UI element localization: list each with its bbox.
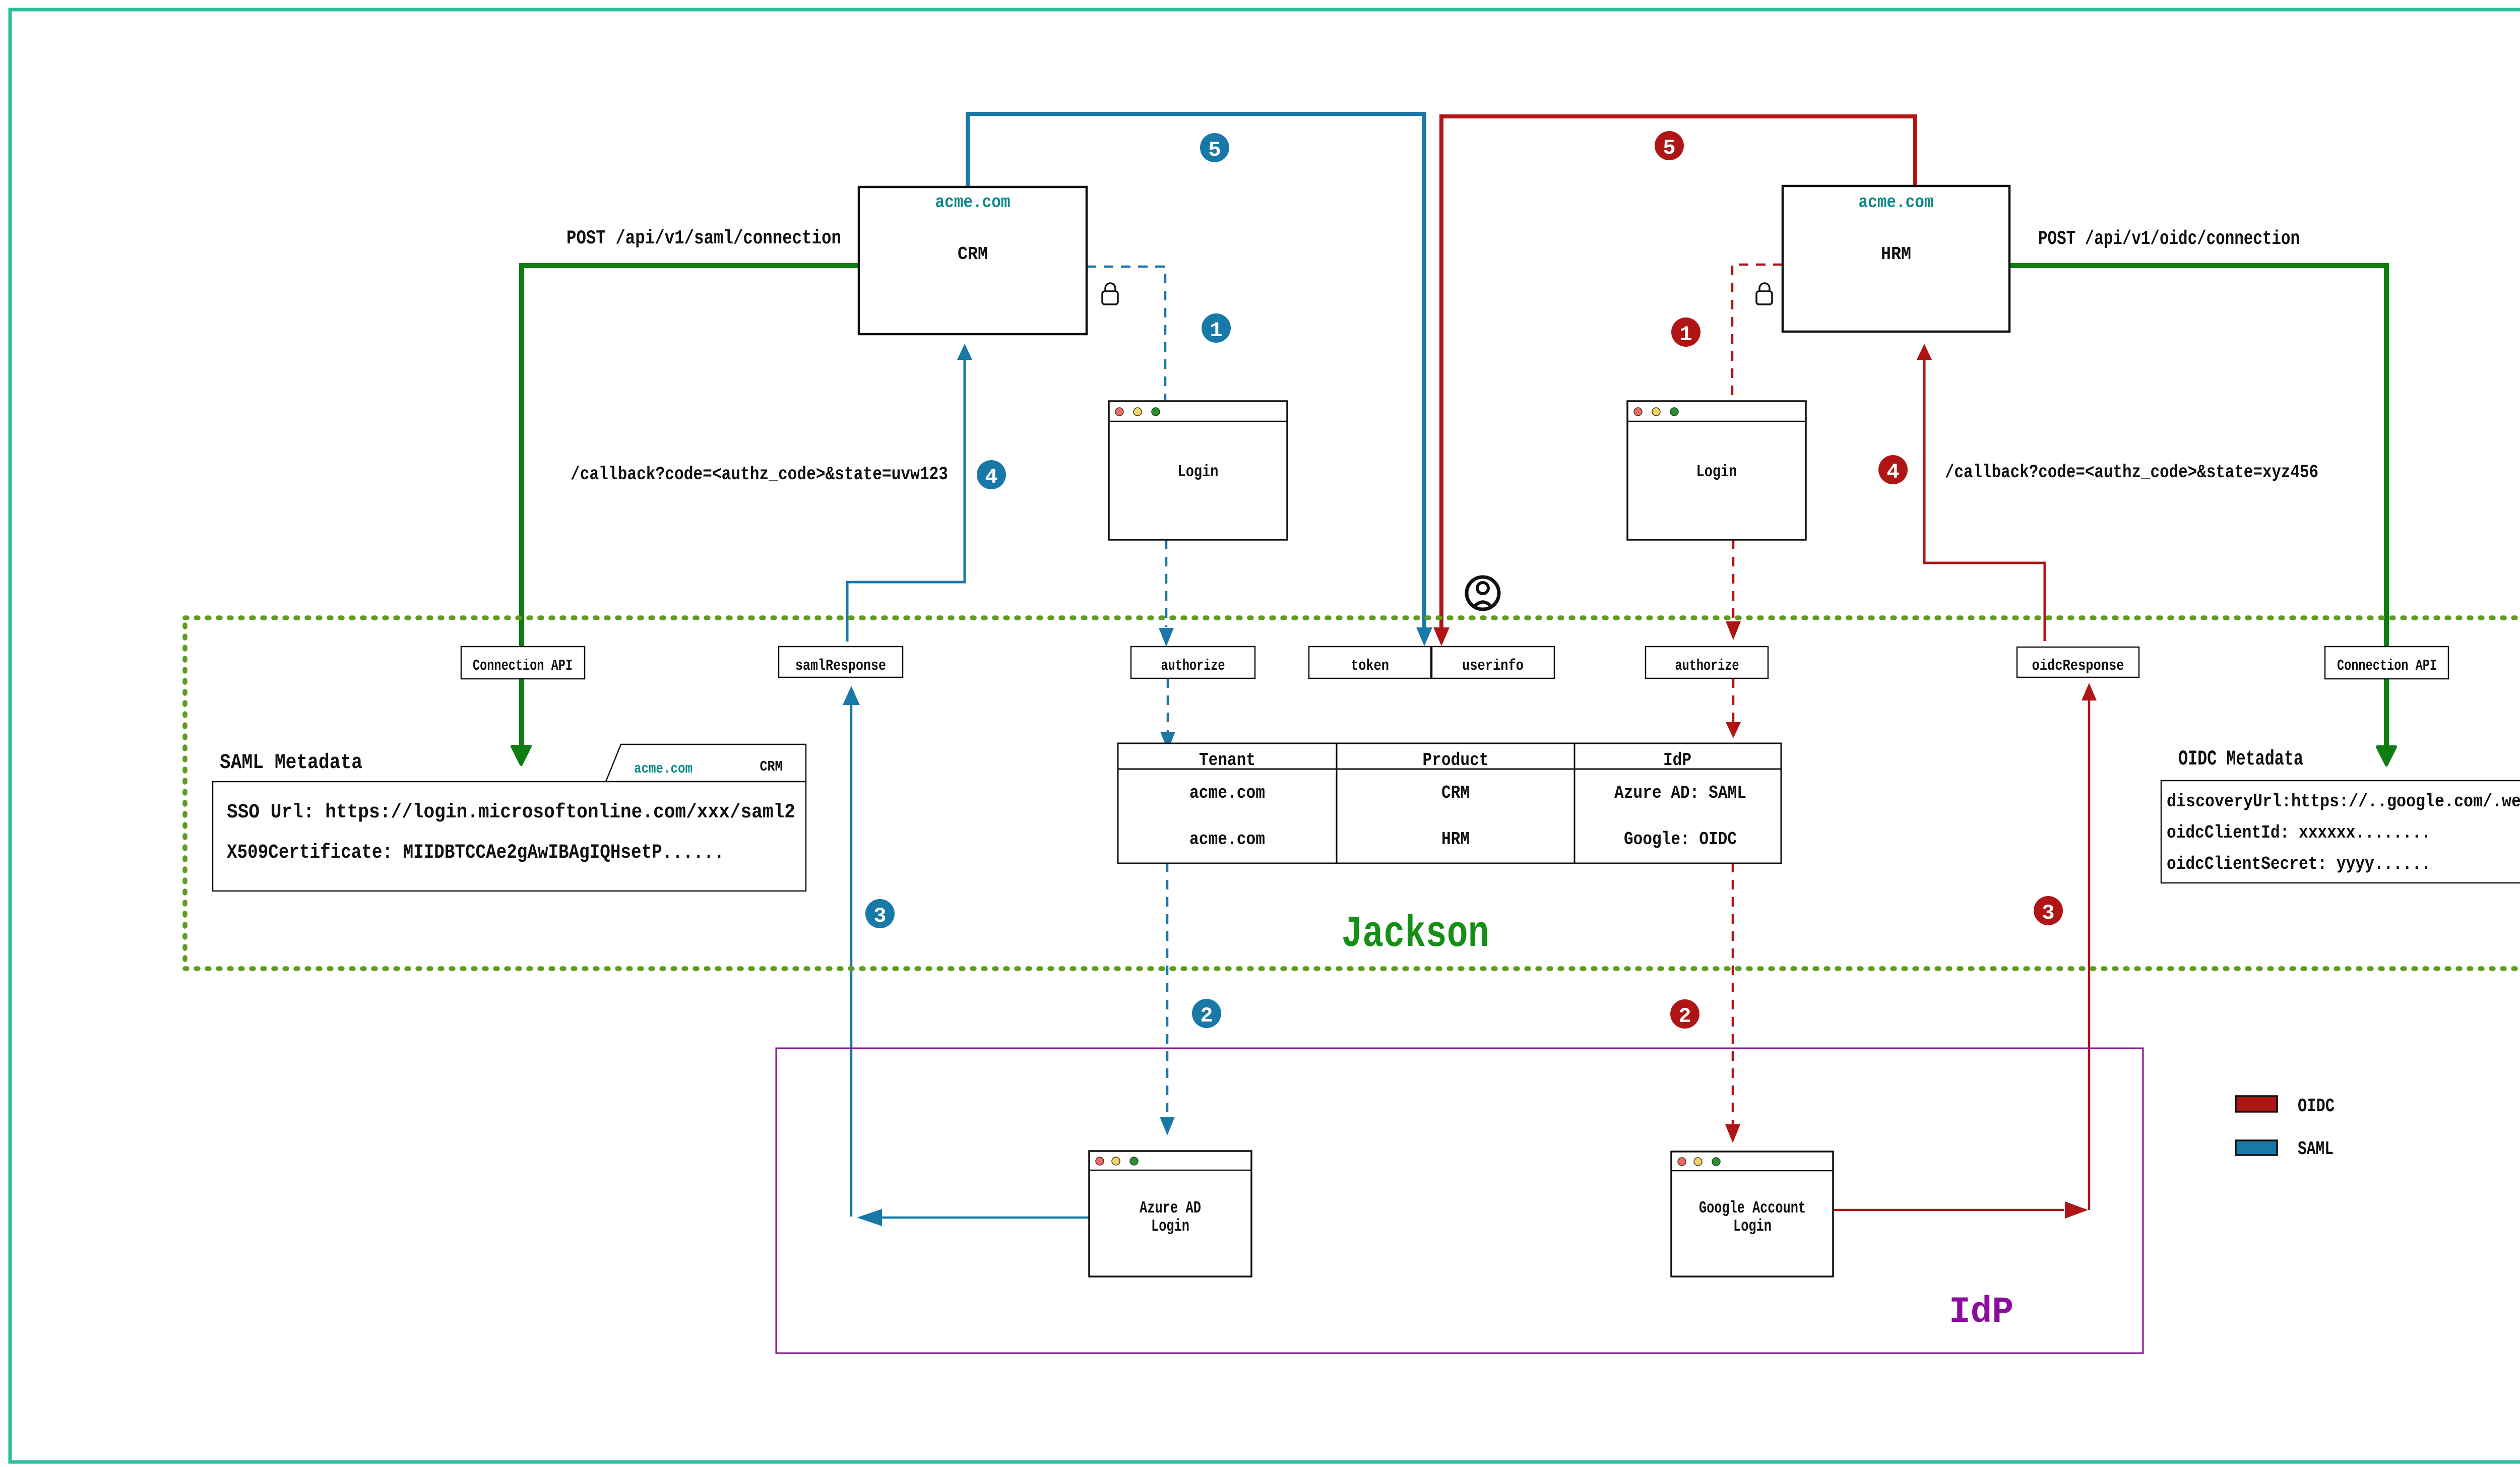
svg-text:Product: Product <box>1423 750 1489 771</box>
svg-text:2: 2 <box>1678 1004 1691 1029</box>
svg-text:Jackson: Jackson <box>1342 910 1489 960</box>
svg-text:2: 2 <box>1200 1004 1213 1028</box>
svg-text:POST /api/v1/oidc/connection: POST /api/v1/oidc/connection <box>2038 228 2300 250</box>
svg-text:Google Account: Google Account <box>1699 1199 1806 1218</box>
svg-text:Login: Login <box>1696 463 1737 481</box>
svg-text:IdP: IdP <box>1949 1291 2013 1333</box>
svg-text:/callback?code=<authz_code>&st: /callback?code=<authz_code>&state=xyz456 <box>1945 462 2318 483</box>
svg-text:Login: Login <box>1733 1217 1772 1236</box>
svg-text:discoveryUrl:https://..google.: discoveryUrl:https://..google.com/.well-… <box>2167 791 2520 812</box>
svg-text:SAML: SAML <box>2298 1138 2334 1160</box>
svg-text:1: 1 <box>1210 318 1222 343</box>
svg-text:userinfo: userinfo <box>1462 657 1524 675</box>
svg-text:Login: Login <box>1178 463 1219 481</box>
svg-text:HRM: HRM <box>1881 244 1911 265</box>
svg-text:acme.com: acme.com <box>1189 829 1265 850</box>
svg-text:SSO Url: https://login.microso: SSO Url: https://login.microsoftonline.c… <box>227 801 795 824</box>
svg-text:5: 5 <box>1663 136 1675 160</box>
svg-text:acme.com: acme.com <box>1189 783 1265 803</box>
svg-text:5: 5 <box>1208 138 1221 162</box>
svg-text:Tenant: Tenant <box>1199 750 1255 771</box>
svg-text:authorize: authorize <box>1675 657 1739 675</box>
svg-text:3: 3 <box>873 904 886 928</box>
svg-text:oidcClientSecret: yyyy......: oidcClientSecret: yyyy...... <box>2167 854 2431 874</box>
svg-text:POST /api/v1/saml/connection: POST /api/v1/saml/connection <box>566 227 841 249</box>
svg-text:CRM: CRM <box>958 244 988 265</box>
svg-text:CRM: CRM <box>760 758 783 775</box>
svg-text:3: 3 <box>2042 901 2054 925</box>
svg-text:IdP: IdP <box>1663 750 1691 771</box>
svg-text:samlResponse: samlResponse <box>795 657 886 675</box>
svg-text:oidcClientId: xxxxxx........: oidcClientId: xxxxxx........ <box>2167 822 2431 843</box>
svg-text:X509Certificate: MIIDBTCCAe2gA: X509Certificate: MIIDBTCCAe2gAwIBAgIQHse… <box>227 842 724 864</box>
svg-text:OIDC Metadata: OIDC Metadata <box>2178 747 2303 771</box>
svg-text:Connection API: Connection API <box>2337 657 2437 675</box>
svg-text:oidcResponse: oidcResponse <box>2032 657 2124 675</box>
svg-text:/callback?code=<authz_code>&st: /callback?code=<authz_code>&state=uvw123 <box>571 464 948 485</box>
svg-text:1: 1 <box>1679 323 1692 347</box>
svg-text:SAML Metadata: SAML Metadata <box>220 750 362 775</box>
svg-text:acme.com: acme.com <box>634 760 692 777</box>
svg-text:Google: OIDC: Google: OIDC <box>1624 829 1737 850</box>
svg-text:4: 4 <box>985 465 997 489</box>
svg-text:token: token <box>1351 657 1389 675</box>
svg-text:Login: Login <box>1151 1217 1189 1236</box>
svg-text:CRM: CRM <box>1441 783 1470 803</box>
svg-text:Azure AD: Azure AD <box>1140 1199 1201 1218</box>
svg-text:4: 4 <box>1886 460 1899 484</box>
svg-text:Connection API: Connection API <box>473 657 573 675</box>
svg-text:HRM: HRM <box>1441 829 1470 850</box>
svg-text:Azure AD: SAML: Azure AD: SAML <box>1614 783 1746 803</box>
svg-text:acme.com: acme.com <box>1859 192 1934 213</box>
svg-text:authorize: authorize <box>1161 657 1225 675</box>
svg-text:OIDC: OIDC <box>2298 1096 2335 1117</box>
svg-text:acme.com: acme.com <box>935 192 1011 213</box>
